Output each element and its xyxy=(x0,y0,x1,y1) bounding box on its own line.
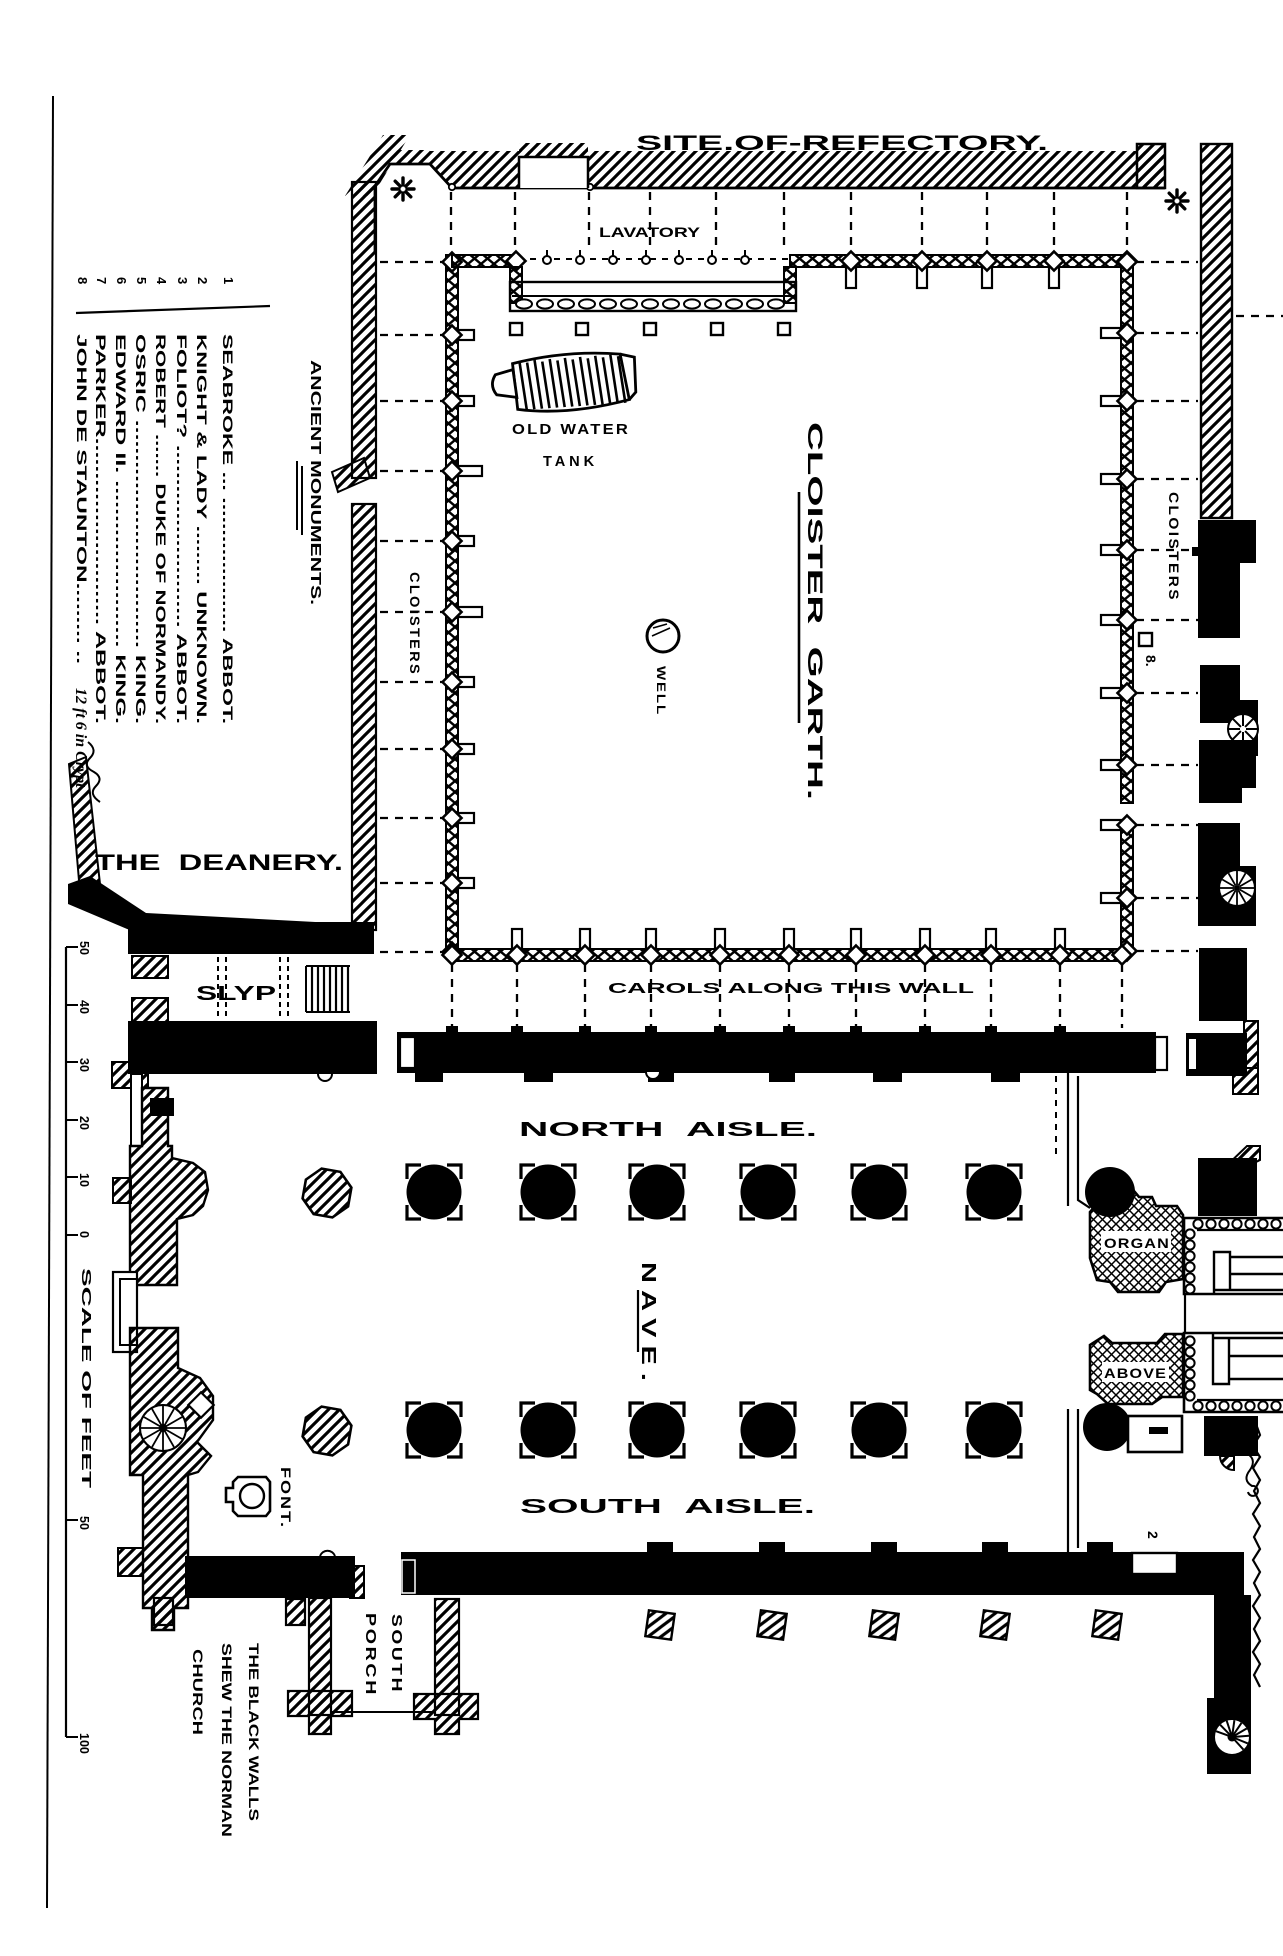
svg-text:JOHN DE STAUNTON......... ..: JOHN DE STAUNTON......... .. xyxy=(74,334,89,664)
svg-text:2: 2 xyxy=(195,277,210,284)
svg-text:3: 3 xyxy=(175,277,190,284)
svg-text:12 ft 6 in Crypt: 12 ft 6 in Crypt xyxy=(72,688,89,788)
svg-text:50: 50 xyxy=(77,1516,91,1530)
svg-text:CLOISTER GARTH.: CLOISTER GARTH. xyxy=(803,422,826,800)
svg-text:8: 8 xyxy=(75,277,90,284)
svg-text:1: 1 xyxy=(221,277,236,284)
svg-text:ABOVE: ABOVE xyxy=(1104,1365,1167,1381)
svg-text:SEABROKE ... .................: SEABROKE ... ..................... ABBOT… xyxy=(220,334,235,724)
svg-text:N A V E .: N A V E . xyxy=(637,1262,659,1381)
svg-text:NORTH AISLE.: NORTH AISLE. xyxy=(519,1119,817,1141)
svg-text:SOUTH AISLE.: SOUTH AISLE. xyxy=(520,1496,815,1518)
svg-text:THE DEANERY.: THE DEANERY. xyxy=(95,850,343,875)
svg-text:CLOISTERS: CLOISTERS xyxy=(1166,492,1182,602)
svg-text:SOUTH: SOUTH xyxy=(388,1614,405,1694)
svg-text:5: 5 xyxy=(134,277,149,284)
svg-text:ANCIENT MONUMENTS.: ANCIENT MONUMENTS. xyxy=(307,360,323,605)
svg-text:10: 10 xyxy=(77,1173,91,1187)
svg-text:FONT.: FONT. xyxy=(278,1467,294,1529)
svg-text:SHEW THE NORMAN: SHEW THE NORMAN xyxy=(219,1643,234,1837)
svg-text:4: 4 xyxy=(154,277,169,285)
svg-text:CHURCH: CHURCH xyxy=(190,1649,205,1735)
svg-text:ROBERT ....... DUKE OF NORMAND: ROBERT ....... DUKE OF NORMANDY. xyxy=(153,334,168,724)
svg-text:50: 50 xyxy=(77,941,91,955)
svg-text:PARKER........................: PARKER........................... ABBOT. xyxy=(93,334,108,724)
svg-text:40: 40 xyxy=(77,1000,91,1014)
svg-text:100: 100 xyxy=(77,1733,91,1754)
svg-text:CLOISTERS: CLOISTERS xyxy=(407,572,423,676)
svg-text:6: 6 xyxy=(114,277,129,284)
svg-text:THE BLACK WALLS: THE BLACK WALLS xyxy=(246,1643,261,1821)
svg-text:ORGAN: ORGAN xyxy=(1104,1235,1170,1251)
svg-text:FOLIOT? ......................: FOLIOT? ........................... ABBO… xyxy=(174,334,189,724)
svg-text:30: 30 xyxy=(77,1058,91,1072)
svg-text:EDWARD II. ...................: EDWARD II. ........................ KING… xyxy=(113,334,128,724)
svg-text:0: 0 xyxy=(77,1231,91,1238)
svg-text:TANK: TANK xyxy=(543,453,598,470)
svg-text:20: 20 xyxy=(77,1116,91,1130)
svg-text:KNIGHT & LADY ......... UNKNOW: KNIGHT & LADY ......... UNKNOWN. xyxy=(194,334,209,724)
svg-text:SLYP: SLYP xyxy=(196,983,276,1005)
svg-text:7: 7 xyxy=(94,277,109,284)
svg-text:WELL: WELL xyxy=(654,666,668,716)
svg-text:CAROLS ALONG THIS WALL: CAROLS ALONG THIS WALL xyxy=(608,980,974,997)
svg-text:PORCH: PORCH xyxy=(362,1613,379,1697)
svg-text:OSRIC ........................: OSRIC ................................. … xyxy=(133,334,148,724)
svg-text:8.: 8. xyxy=(1143,655,1159,667)
svg-text:SCALE OF FEET: SCALE OF FEET xyxy=(79,1268,93,1489)
svg-text:2: 2 xyxy=(1145,1531,1161,1539)
svg-text:OLD WATER: OLD WATER xyxy=(512,421,630,438)
